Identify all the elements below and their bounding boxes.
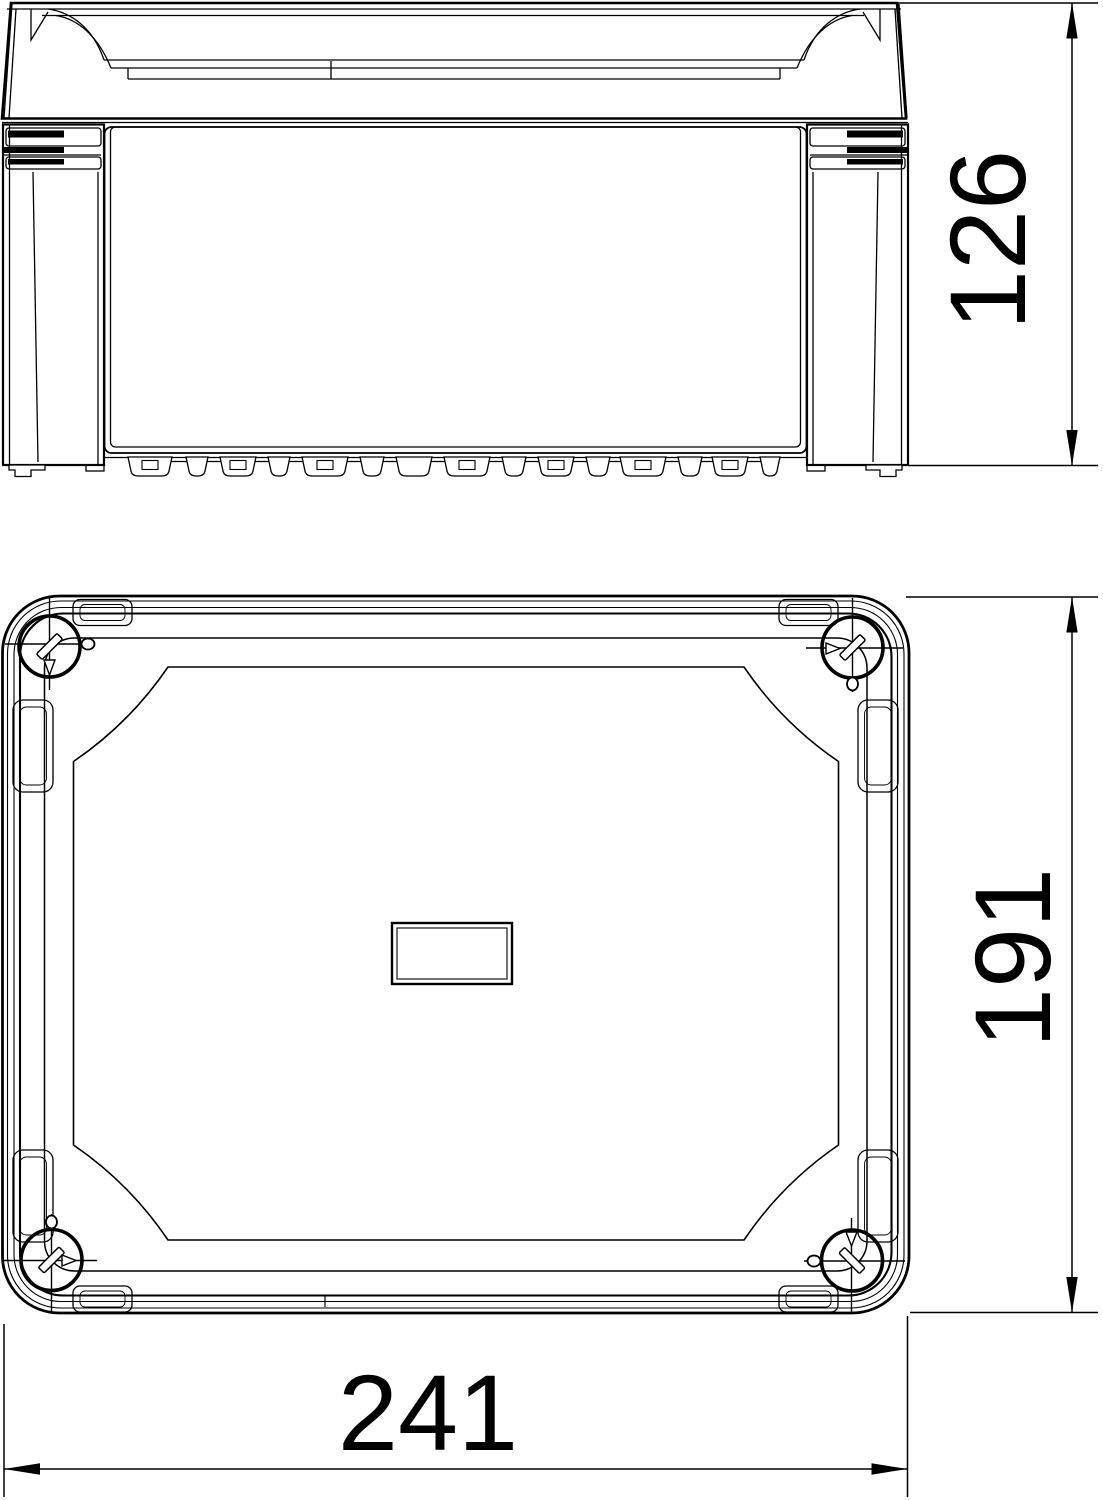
label-window [392,923,512,984]
dimension-width-label: 241 [338,1352,518,1473]
corner-latch-pockets [13,600,898,1313]
lid-recess [104,60,804,79]
lid-panel [74,667,839,1240]
body-cavity [104,127,807,462]
lid-plan-view [3,596,910,1313]
technical-drawing-canvas: 126 191 241 [0,0,1103,1500]
lid-outline [2,3,906,119]
body-right-pillar [807,125,908,477]
lid-inner-edge [45,638,868,1271]
bottom-tab-row [128,457,780,476]
dimension-width: 241 [4,1316,908,1497]
corner-screw-top-right [806,598,903,692]
lid-left-post [4,4,111,118]
side-elevation-view [2,3,908,477]
dimension-height: 126 [897,3,1098,466]
corner-screw-bottom-left [4,1214,97,1312]
dimension-height-label: 126 [927,150,1048,330]
dimension-depth: 191 [906,597,1098,1313]
body-left-pillar [3,125,104,477]
lid-right-post [797,4,907,118]
dimension-depth-label: 191 [952,868,1073,1048]
